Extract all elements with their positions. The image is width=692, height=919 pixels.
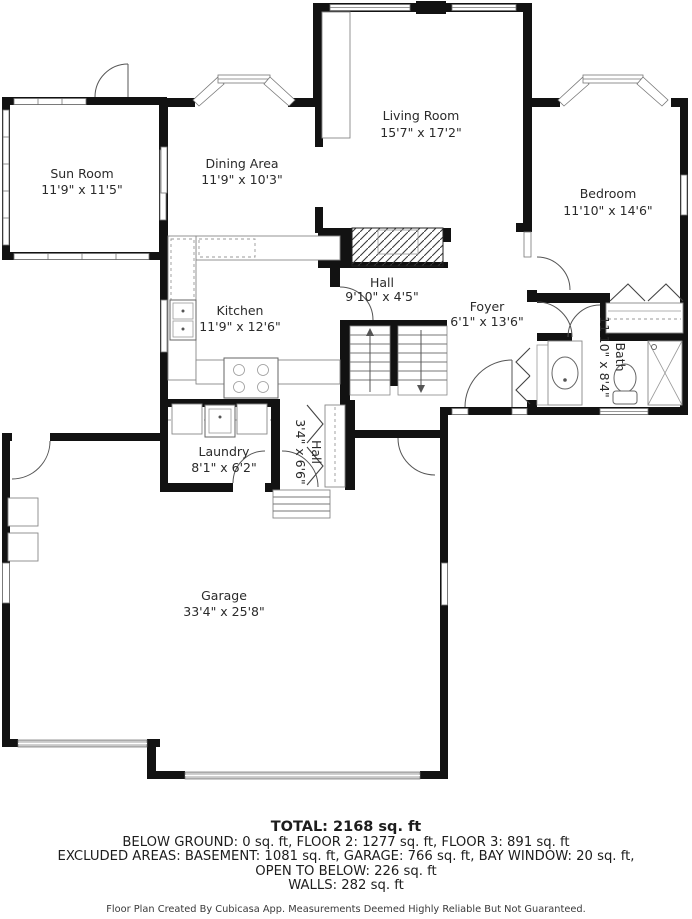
floors-area-line: BELOW GROUND: 0 sq. ft, FLOOR 2: 1277 sq… [0,836,692,851]
foyer-dims: 6'1" x 13'6" [450,314,523,329]
laundry-label: Laundry [199,444,251,459]
bedroom-door-arc [537,257,570,290]
garage-features [8,490,420,779]
garage-shelf-2 [8,533,38,561]
bay-windows [193,75,668,106]
bath-door-arc [568,305,600,337]
open-to-below-line: OPEN TO BELOW: 226 sq. ft [0,865,692,880]
credit-line: Floor Plan Created By Cubicasa App. Meas… [0,904,692,915]
bath-hall-door-arc [537,302,572,337]
garage-shelf-1 [8,498,38,526]
bedroom-closet [606,284,683,333]
area-summary: TOTAL: 2168 sq. ft BELOW GROUND: 0 sq. f… [0,820,692,894]
kitchen-counter-top [196,236,340,260]
bath-dims: 11'10" x 8'4" [597,316,612,397]
shower [648,341,682,405]
bedroom-bay-window [558,75,668,106]
open-to-below-rail [322,12,350,138]
staircase [350,326,447,395]
sun-room-label: Sun Room [50,166,113,181]
bath-label: Bath [613,342,628,371]
landing-garage-door-arc [398,438,435,475]
foyer-label: Foyer [470,299,505,314]
excluded-areas-line: EXCLUDED AREAS: BASEMENT: 1081 sq. ft, G… [0,850,692,865]
dining-bay-window [193,75,295,106]
walls-area-line: WALLS: 282 sq. ft [0,879,692,894]
hall-2-dims: 3'4" x 6'6" [293,419,308,485]
bedroom-label: Bedroom [580,186,637,201]
hall-dims: 9'10" x 4'5" [345,289,418,304]
garage-label: Garage [201,588,247,603]
floor-plan: Sun Room 11'9" x 11'5" Dining Area 11'9"… [0,0,692,812]
garage-dims: 33'4" x 25'8" [183,604,264,619]
stove [224,358,278,398]
foyer-closet [516,345,548,405]
dining-area-label: Dining Area [205,156,278,171]
floor-plan-svg: Sun Room 11'9" x 11'5" Dining Area 11'9"… [0,0,692,812]
hall-2-label: Hall [309,440,324,464]
living-room-label: Living Room [383,108,460,123]
laundry-sink [205,405,235,437]
bath-sink [552,357,578,389]
kitchen-sink [170,300,196,340]
bedroom-dims: 11'10" x 14'6" [563,203,652,218]
front-door-arc [465,360,512,407]
garage-entry-steps [273,490,330,518]
laundry-fixtures [168,404,271,437]
laundry-dims: 8'1" x 6'2" [191,460,257,475]
kitchen-dims: 11'9" x 12'6" [199,319,280,334]
sun-room-dims: 11'9" x 11'5" [41,182,122,197]
stairwell-opening-hatch [352,228,443,266]
dryer [237,404,267,434]
total-area: TOTAL: 2168 sq. ft [0,820,692,835]
washer [172,404,202,434]
kitchen-label: Kitchen [217,303,264,318]
dining-area-dims: 11'9" x 10'3" [201,172,282,187]
sun-room-door-arc [95,64,128,97]
living-room-dims: 15'7" x 17'2" [380,125,461,140]
hall-label: Hall [370,275,394,290]
garage-entry-door-arc [12,441,50,479]
